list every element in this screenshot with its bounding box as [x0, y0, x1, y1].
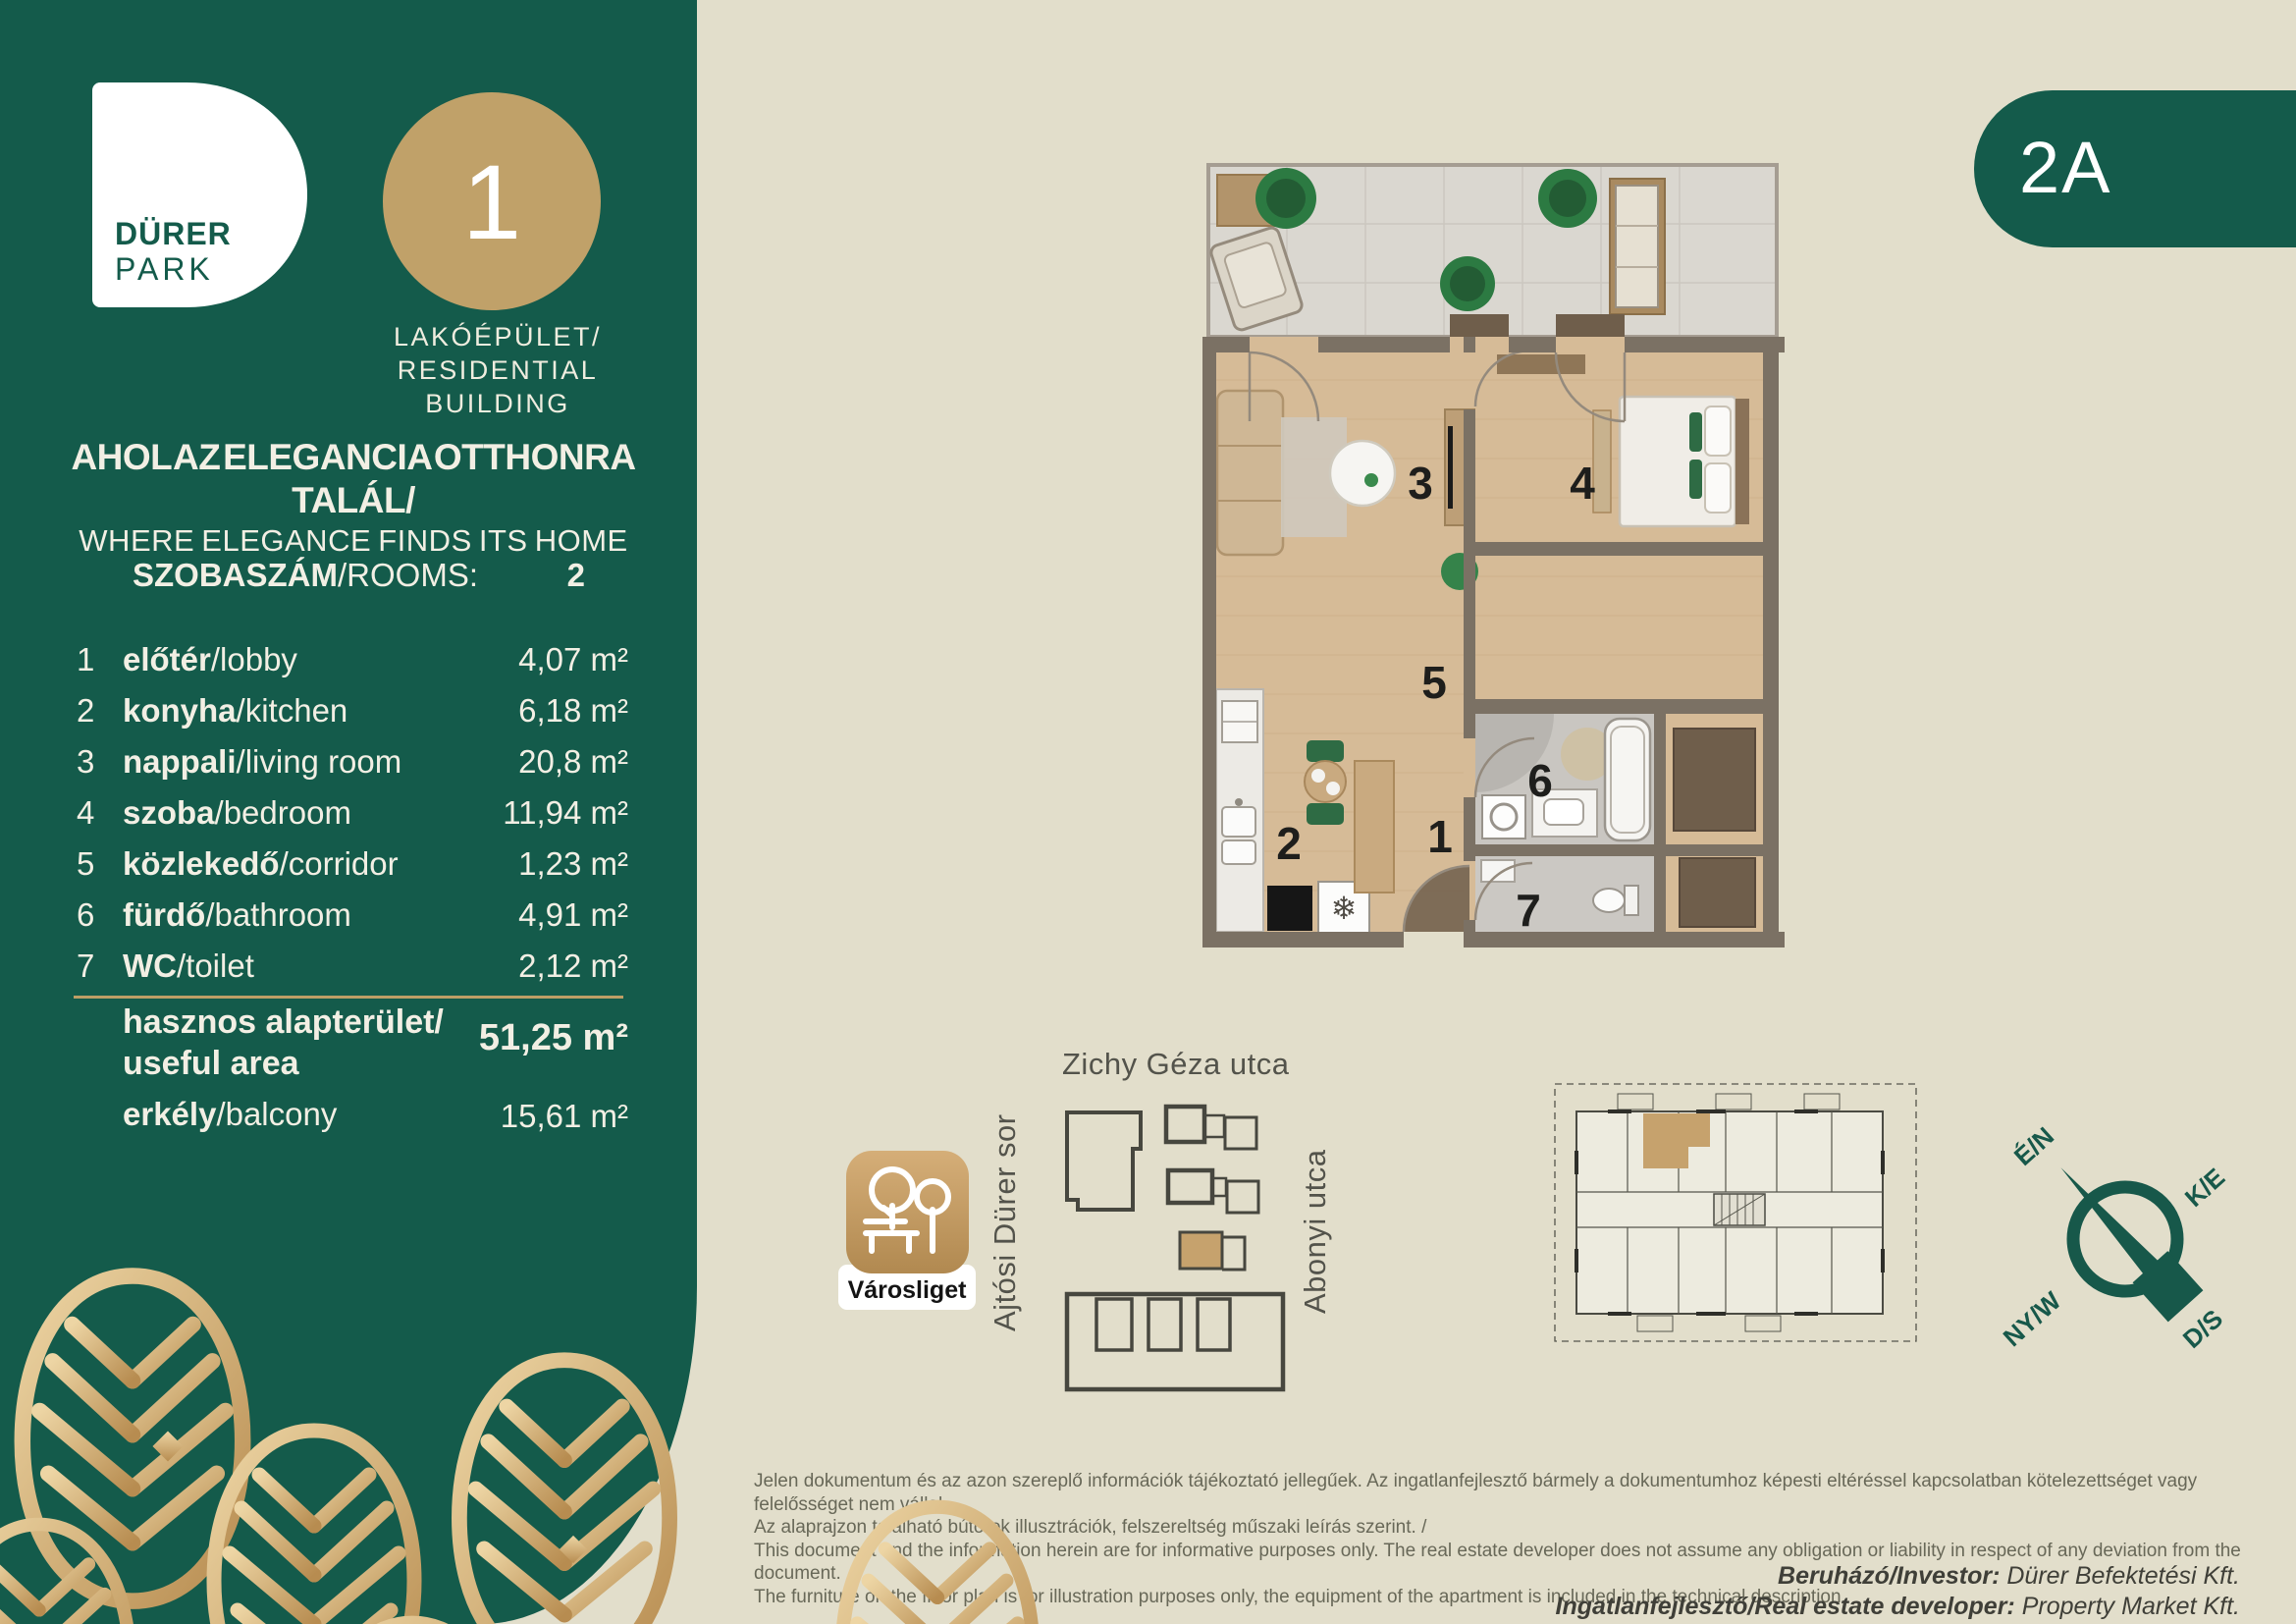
building-label-en: RESIDENTIAL BUILDING: [336, 353, 660, 420]
building-number: 1: [462, 140, 521, 263]
kitchen-bar: [1355, 761, 1394, 893]
compass-south: D/S: [2177, 1304, 2228, 1354]
logo-word-park: PARK: [115, 251, 214, 288]
bathtub: [1605, 719, 1650, 840]
street-label-zichy: Zichy Géza utca: [1062, 1047, 1289, 1082]
balcony-area: 15,61 m²: [383, 1098, 628, 1135]
table-row: 4 szoba/bedroom 11,94 m²: [69, 794, 628, 834]
dining-set: [1305, 740, 1346, 825]
room-area: 4,07 m²: [518, 641, 628, 678]
door-mat: [1450, 314, 1509, 337]
building-label-hu: LAKÓÉPÜLET/: [336, 320, 660, 353]
room-area: 6,18 m²: [518, 692, 628, 730]
highlighted-unit: [1688, 1113, 1710, 1147]
map-building: [1067, 1112, 1141, 1210]
kitchen-counter: [1216, 689, 1263, 932]
table-row: 3 nappali/living room 20,8 m²: [69, 743, 628, 783]
disclaimer-line: Jelen dokumentum és az azon szereplő inf…: [754, 1470, 2270, 1516]
closet: [1680, 858, 1755, 927]
svg-text:❄: ❄: [1331, 891, 1358, 926]
map-building: [1222, 1237, 1245, 1270]
table-row: 2 konyha/kitchen 6,18 m²: [69, 692, 628, 731]
rooms-header-hu: SZOBASZÁM: [133, 557, 338, 593]
site-map: [1041, 1100, 1355, 1406]
table-row: 5 közlekedő/corridor 1,23 m²: [69, 845, 628, 885]
table-row: 7 WC/toilet 2,12 m²: [69, 947, 628, 987]
toilet: [1593, 886, 1638, 915]
tagline-hu: AHOL AZ ELEGANCIA OTTHONRA TALÁL/: [39, 436, 667, 522]
coffee-table: [1330, 441, 1395, 506]
compass-east: K/E: [2179, 1163, 2230, 1213]
disclaimer-line: Az alaprajzon található bútorok illusztr…: [754, 1516, 2270, 1540]
logo-word-durer: DÜRER: [115, 216, 232, 252]
apartment-floorplan: ❄: [1202, 159, 1785, 956]
map-building: [1227, 1181, 1258, 1213]
rooms-header: SZOBASZÁM/ROOMS:: [133, 557, 478, 594]
room-number-5: 5: [1421, 657, 1447, 708]
highlighted-unit: [1643, 1113, 1688, 1168]
room-number-6: 6: [1527, 755, 1553, 806]
map-building: [1067, 1294, 1283, 1389]
balcony-label: erkély/balcony: [123, 1096, 337, 1133]
brochure-page: DÜRER PARK 1 LAKÓÉPÜLET/ RESIDENTIAL BUI…: [0, 0, 2296, 1624]
trees-bench-icon: [846, 1151, 969, 1273]
building-number-badge: 1: [383, 92, 601, 310]
dresser: [1497, 354, 1585, 374]
map-building: [1225, 1117, 1256, 1149]
room-number-1: 1: [1427, 811, 1453, 862]
gold-divider: [74, 996, 623, 999]
washing-machine: [1482, 795, 1525, 839]
unit-code: 2A: [2019, 90, 2112, 245]
tagline: AHOL AZ ELEGANCIA OTTHONRA TALÁL/ WHERE …: [39, 436, 667, 560]
rooms-count: 2: [530, 557, 585, 594]
table-row: 1 előtér/lobby 4,07 m²: [69, 641, 628, 680]
building-overview-plan: [1549, 1072, 1922, 1367]
park-icon: [846, 1151, 969, 1273]
rooms-header-en: /ROOMS:: [338, 557, 478, 593]
unit-code-badge: 2A: [1974, 90, 2296, 247]
credits: Beruházó/Investor: Dürer Befektetési Kft…: [1357, 1561, 2240, 1622]
map-building: [1204, 1115, 1224, 1137]
investor-line: Beruházó/Investor: Dürer Befektetési Kft…: [1357, 1561, 2240, 1592]
room-number-4: 4: [1570, 458, 1595, 509]
map-building: [1148, 1299, 1181, 1350]
balcony-sofa: [1610, 179, 1665, 314]
park-label: Városliget: [848, 1271, 967, 1310]
building-label: LAKÓÉPÜLET/ RESIDENTIAL BUILDING: [336, 320, 660, 420]
tagline-en: WHERE ELEGANCE FINDS ITS HOME: [39, 522, 667, 560]
room-area: 1,23 m²: [518, 845, 628, 883]
total-label-en: useful area: [123, 1045, 299, 1083]
room-area: 20,8 m²: [518, 743, 628, 781]
map-building: [1096, 1299, 1132, 1350]
room-number-3: 3: [1408, 458, 1433, 509]
developer-line: Ingatlanfejlesztő/Real estate developer:…: [1357, 1592, 2240, 1622]
compass-north: É/N: [2008, 1121, 2059, 1171]
room-area: 4,91 m²: [518, 896, 628, 934]
table-row: 6 fürdő/bathroom 4,91 m²: [69, 896, 628, 936]
map-building: [1168, 1170, 1212, 1203]
wc-sink: [1481, 860, 1515, 882]
room-area: 11,94 m²: [503, 794, 628, 832]
map-highlighted-building: [1180, 1232, 1222, 1269]
room-area: 2,12 m²: [518, 947, 628, 985]
room-number-7: 7: [1516, 885, 1541, 936]
street-label-ajtosi: Ajtósi Dürer sor: [988, 1113, 1023, 1331]
closet: [1674, 729, 1755, 831]
total-area: 51,25 m²: [383, 1017, 628, 1059]
map-building: [1198, 1299, 1230, 1350]
map-building: [1166, 1107, 1204, 1142]
room-number-2: 2: [1276, 818, 1302, 869]
cooktop: [1267, 886, 1312, 931]
compass-west: NY/W: [1998, 1285, 2067, 1352]
sidebar-panel: DÜRER PARK 1 LAKÓÉPÜLET/ RESIDENTIAL BUI…: [0, 0, 697, 1624]
door-mat: [1556, 314, 1625, 337]
compass-icon: É/N K/E NY/W D/S: [2002, 1129, 2268, 1365]
